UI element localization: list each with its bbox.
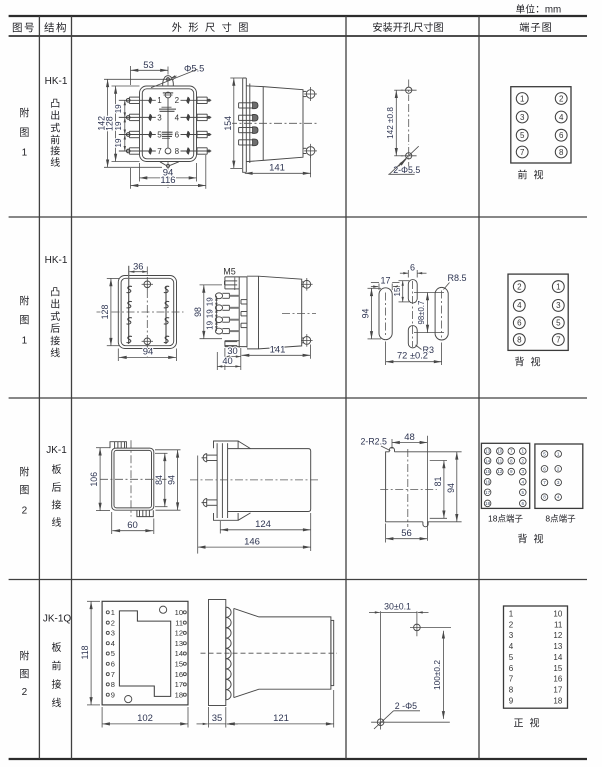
svg-text:13: 13 xyxy=(553,642,562,651)
svg-text:12: 12 xyxy=(175,629,183,638)
svg-text:M5: M5 xyxy=(223,267,236,277)
svg-text:94: 94 xyxy=(143,347,154,358)
svg-text:6: 6 xyxy=(543,466,546,471)
svg-text:84: 84 xyxy=(154,475,164,485)
svg-text:128: 128 xyxy=(100,305,110,320)
svg-text:后: 后 xyxy=(50,323,60,335)
svg-text:R8.5: R8.5 xyxy=(448,273,467,283)
svg-text:接: 接 xyxy=(52,499,62,512)
svg-text:线: 线 xyxy=(50,346,60,359)
svg-text:154: 154 xyxy=(223,116,233,131)
svg-text:9: 9 xyxy=(111,690,115,699)
svg-text:视: 视 xyxy=(534,533,544,546)
svg-text:10: 10 xyxy=(553,610,562,619)
svg-text:10: 10 xyxy=(175,608,183,617)
svg-text:5: 5 xyxy=(543,452,546,457)
svg-text:60: 60 xyxy=(127,520,138,531)
svg-text:7: 7 xyxy=(111,670,115,679)
svg-text:2: 2 xyxy=(559,94,564,103)
svg-text:15: 15 xyxy=(485,469,491,474)
svg-text:背: 背 xyxy=(518,533,528,546)
svg-text:19: 19 xyxy=(114,138,123,147)
svg-text:5: 5 xyxy=(522,490,525,495)
svg-text:附: 附 xyxy=(19,650,29,663)
svg-text:14: 14 xyxy=(175,649,183,658)
svg-text:5: 5 xyxy=(157,130,162,139)
svg-text:线: 线 xyxy=(50,156,60,169)
svg-text:板: 板 xyxy=(52,463,62,476)
svg-text:附: 附 xyxy=(19,465,29,478)
svg-text:102: 102 xyxy=(137,713,153,724)
svg-text:7: 7 xyxy=(510,449,513,454)
svg-text:7: 7 xyxy=(509,675,514,684)
svg-text:2: 2 xyxy=(175,96,180,105)
svg-text:8: 8 xyxy=(517,335,522,344)
svg-text:1: 1 xyxy=(556,282,561,291)
svg-text:2: 2 xyxy=(517,282,522,291)
svg-text:94: 94 xyxy=(360,309,370,319)
svg-text:3: 3 xyxy=(556,301,561,310)
svg-text:11: 11 xyxy=(554,620,563,629)
svg-text:142 ±0.8: 142 ±0.8 xyxy=(386,107,395,139)
svg-text:7: 7 xyxy=(520,148,525,157)
svg-text:1: 1 xyxy=(22,336,28,347)
svg-text:式: 式 xyxy=(50,122,60,135)
svg-text:3: 3 xyxy=(557,480,560,485)
svg-text:98±0.7: 98±0.7 xyxy=(417,301,426,325)
svg-text:53: 53 xyxy=(143,60,154,71)
svg-text:接: 接 xyxy=(52,678,62,691)
svg-text:116: 116 xyxy=(160,175,175,186)
svg-text:出: 出 xyxy=(50,109,60,122)
svg-text:98: 98 xyxy=(193,307,203,317)
svg-text:30±0.1: 30±0.1 xyxy=(384,602,411,612)
svg-text:板: 板 xyxy=(52,641,62,654)
svg-text:图号: 图号 xyxy=(12,22,36,34)
svg-text:接: 接 xyxy=(50,334,60,347)
svg-text:19: 19 xyxy=(205,309,214,318)
svg-text:6: 6 xyxy=(522,501,525,506)
svg-text:8: 8 xyxy=(509,686,514,695)
svg-text:JK-1: JK-1 xyxy=(46,445,67,456)
svg-text:15: 15 xyxy=(175,660,183,669)
svg-text:11: 11 xyxy=(497,458,502,463)
svg-text:3: 3 xyxy=(522,469,525,474)
svg-text:前: 前 xyxy=(518,169,528,182)
svg-text:6: 6 xyxy=(175,130,180,139)
svg-text:JK-1Q: JK-1Q xyxy=(43,614,72,625)
svg-text:16: 16 xyxy=(553,675,562,684)
svg-text:16: 16 xyxy=(485,479,491,484)
svg-text:5: 5 xyxy=(111,649,115,658)
svg-text:图: 图 xyxy=(19,315,29,327)
svg-text:图: 图 xyxy=(19,127,29,139)
svg-text:4: 4 xyxy=(559,113,564,122)
svg-text:17: 17 xyxy=(380,275,390,285)
svg-text:6: 6 xyxy=(517,319,522,328)
svg-text:5: 5 xyxy=(556,319,561,328)
svg-text:凸: 凸 xyxy=(50,287,60,299)
svg-text:线: 线 xyxy=(52,697,62,710)
svg-text:视: 视 xyxy=(531,356,541,369)
svg-text:HK-1: HK-1 xyxy=(45,255,68,266)
svg-text:2-R2.5: 2-R2.5 xyxy=(361,436,388,446)
svg-text:2: 2 xyxy=(522,458,525,463)
svg-text:端子图: 端子图 xyxy=(519,21,553,34)
svg-text:结构: 结构 xyxy=(44,21,68,34)
svg-text:5: 5 xyxy=(520,131,525,140)
svg-text:9: 9 xyxy=(510,469,513,474)
svg-text:8点端子: 8点端子 xyxy=(545,514,576,524)
svg-text:81: 81 xyxy=(433,477,443,487)
svg-text:18: 18 xyxy=(175,690,183,699)
svg-text:前: 前 xyxy=(52,660,62,673)
svg-text:4: 4 xyxy=(557,495,560,500)
svg-text:背: 背 xyxy=(515,356,525,369)
svg-text:6: 6 xyxy=(559,131,564,140)
svg-text:18点端子: 18点端子 xyxy=(488,514,523,524)
svg-text:1: 1 xyxy=(157,96,162,105)
svg-text:11: 11 xyxy=(175,618,183,627)
svg-text:146: 146 xyxy=(244,536,260,547)
svg-text:2: 2 xyxy=(111,618,115,627)
svg-text:单位：mm: 单位：mm xyxy=(516,3,562,16)
svg-text:3: 3 xyxy=(111,629,115,638)
svg-text:4: 4 xyxy=(517,301,522,310)
svg-text:14: 14 xyxy=(485,458,491,463)
svg-text:121: 121 xyxy=(273,713,289,724)
svg-text:安装开孔尺寸图: 安装开孔尺寸图 xyxy=(372,21,443,34)
svg-text:94: 94 xyxy=(446,483,456,493)
svg-text:附: 附 xyxy=(19,294,29,307)
svg-text:接: 接 xyxy=(50,145,60,158)
svg-text:出: 出 xyxy=(50,298,60,311)
svg-text:3: 3 xyxy=(157,113,162,122)
svg-text:12: 12 xyxy=(553,631,562,640)
svg-text:19: 19 xyxy=(205,320,214,329)
svg-text:1: 1 xyxy=(22,148,28,159)
svg-text:100±0.2: 100±0.2 xyxy=(432,660,442,690)
svg-text:15: 15 xyxy=(553,664,562,673)
svg-text:7: 7 xyxy=(543,480,546,485)
svg-text:2: 2 xyxy=(22,506,28,517)
svg-text:72 ±0.2: 72 ±0.2 xyxy=(397,351,428,361)
svg-text:3: 3 xyxy=(509,631,514,640)
svg-text:13: 13 xyxy=(175,639,183,648)
svg-text:前: 前 xyxy=(50,133,60,146)
svg-text:外 形 尺 寸 图: 外 形 尺 寸 图 xyxy=(172,21,250,34)
svg-text:后: 后 xyxy=(52,482,62,494)
svg-text:Φ5.5: Φ5.5 xyxy=(184,63,204,73)
svg-text:1: 1 xyxy=(522,449,525,454)
svg-text:36: 36 xyxy=(133,261,143,271)
svg-text:56: 56 xyxy=(401,528,412,539)
svg-text:124: 124 xyxy=(255,519,271,530)
svg-text:图: 图 xyxy=(19,485,29,497)
svg-text:19: 19 xyxy=(205,297,214,306)
svg-text:线: 线 xyxy=(52,516,62,529)
svg-text:8: 8 xyxy=(111,680,115,689)
svg-text:8: 8 xyxy=(175,147,180,156)
svg-text:6: 6 xyxy=(509,664,514,673)
svg-text:1: 1 xyxy=(509,610,514,619)
svg-text:3: 3 xyxy=(520,113,525,122)
svg-text:18: 18 xyxy=(485,501,491,506)
svg-text:6: 6 xyxy=(410,263,415,273)
svg-text:7: 7 xyxy=(556,335,561,344)
svg-text:凸: 凸 xyxy=(50,98,60,110)
svg-text:16: 16 xyxy=(175,670,183,679)
svg-text:2: 2 xyxy=(557,466,560,471)
svg-text:10: 10 xyxy=(497,449,503,454)
svg-text:18: 18 xyxy=(553,696,562,705)
svg-text:7: 7 xyxy=(157,147,162,156)
svg-text:1: 1 xyxy=(557,452,560,457)
svg-text:12: 12 xyxy=(497,469,503,474)
svg-text:4: 4 xyxy=(509,642,514,651)
svg-text:17: 17 xyxy=(553,686,562,695)
svg-text:17: 17 xyxy=(485,490,491,495)
svg-text:13: 13 xyxy=(485,449,491,454)
svg-text:106: 106 xyxy=(89,472,99,487)
svg-text:14: 14 xyxy=(553,653,562,662)
svg-text:15: 15 xyxy=(393,287,402,296)
svg-text:2: 2 xyxy=(22,687,28,698)
svg-text:48: 48 xyxy=(404,432,415,443)
svg-text:30: 30 xyxy=(227,346,237,356)
svg-text:1: 1 xyxy=(111,608,115,617)
svg-text:图: 图 xyxy=(19,669,29,681)
svg-text:4: 4 xyxy=(175,113,180,122)
svg-text:2 -Φ5: 2 -Φ5 xyxy=(395,701,417,711)
svg-text:4: 4 xyxy=(111,639,115,648)
svg-text:141: 141 xyxy=(269,163,285,174)
svg-text:35: 35 xyxy=(212,713,223,724)
svg-text:正: 正 xyxy=(514,718,524,729)
svg-text:8: 8 xyxy=(510,458,513,463)
svg-text:141: 141 xyxy=(270,345,286,356)
svg-text:40: 40 xyxy=(222,356,232,366)
svg-text:4: 4 xyxy=(522,479,525,484)
svg-text:17: 17 xyxy=(175,680,183,689)
svg-text:94: 94 xyxy=(167,475,177,485)
svg-text:19: 19 xyxy=(114,104,123,113)
svg-text:附: 附 xyxy=(19,106,29,119)
svg-text:19: 19 xyxy=(114,121,123,130)
svg-text:2-Φ5.5: 2-Φ5.5 xyxy=(393,165,420,175)
svg-text:8: 8 xyxy=(543,495,546,500)
svg-text:1: 1 xyxy=(520,94,525,103)
svg-text:2: 2 xyxy=(509,620,514,629)
svg-text:视: 视 xyxy=(534,169,544,182)
svg-text:式: 式 xyxy=(50,310,60,323)
svg-text:9: 9 xyxy=(509,696,514,705)
svg-text:视: 视 xyxy=(530,716,540,729)
svg-text:5: 5 xyxy=(509,653,514,662)
svg-text:118: 118 xyxy=(80,645,90,659)
svg-text:HK-1: HK-1 xyxy=(45,76,68,87)
svg-text:8: 8 xyxy=(559,148,564,157)
svg-text:6: 6 xyxy=(111,660,115,669)
